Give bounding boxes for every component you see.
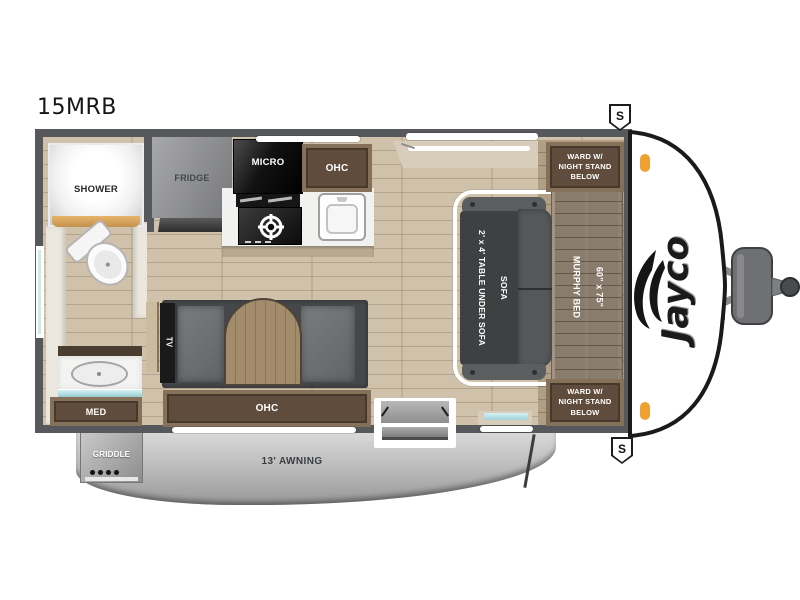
kitchen-ohc-label: OHC — [326, 163, 349, 174]
microwave-label: MICRO — [233, 157, 303, 168]
griddle-knob — [90, 470, 95, 475]
awning-arm — [523, 434, 535, 488]
bath-window-glass — [38, 250, 41, 334]
floorplan: 15MRB 13' AWNING GRIDDLE SHOWER MED — [0, 0, 800, 600]
window — [406, 133, 538, 140]
dinette-cushion — [178, 306, 224, 382]
med-cabinet: MED — [50, 397, 142, 426]
stove-knob — [245, 241, 251, 243]
living-ohc: OHC — [163, 390, 371, 427]
griddle-knob — [114, 470, 119, 475]
sofa-back — [518, 209, 552, 367]
kitchen-sink — [318, 193, 366, 241]
tv-label: TV — [165, 337, 174, 348]
entry-platform — [381, 401, 449, 423]
marker-light — [640, 402, 650, 420]
hitch-ball — [781, 278, 799, 296]
griddle-shelf — [85, 477, 138, 481]
stove — [238, 207, 302, 245]
model-name: 15MRB — [37, 95, 117, 120]
kitchen-ohc: OHC — [302, 144, 372, 192]
entry-steps — [382, 427, 448, 440]
speaker-badge-letter: S — [611, 106, 629, 129]
dinette-cushion — [301, 306, 355, 382]
awning — [76, 433, 556, 505]
griddle: GRIDDLE — [80, 432, 143, 483]
stove-knob — [255, 241, 261, 243]
wardrobe-bottom: WARD W/ NIGHT STAND BELOW — [546, 379, 624, 426]
griddle-label: GRIDDLE — [81, 450, 142, 459]
window-box-step — [478, 411, 532, 425]
sofa-armrest — [462, 364, 546, 380]
jayco-logo: Jayco — [656, 236, 697, 342]
bath-sink-counter — [58, 356, 142, 390]
shower-label: SHOWER — [48, 184, 144, 195]
griddle-knob — [106, 470, 111, 475]
sofa-table-note: 2' x 4' TABLE UNDER SOFA — [477, 230, 487, 346]
side-ledge — [146, 302, 159, 372]
kitchen-cabinet-base — [222, 246, 374, 257]
fridge-label: FRIDGE — [152, 173, 232, 183]
bath-counter-edge — [58, 389, 142, 397]
window — [172, 427, 356, 433]
med-label: MED — [86, 407, 107, 417]
speaker-badge-letter: S — [613, 439, 631, 462]
front-counter — [393, 141, 545, 168]
fridge-vent — [158, 218, 226, 232]
marker-light — [640, 154, 650, 172]
range-hood — [236, 194, 300, 207]
stove-knob — [265, 241, 271, 243]
faucet — [337, 197, 347, 202]
murphy-bed-label: 60" x 75" MURPHY BED — [566, 256, 611, 318]
speaker-badge: S — [611, 437, 633, 464]
sofa-label: SOFA — [499, 276, 509, 300]
table — [224, 298, 302, 386]
wardrobe-bottom-label: WARD W/ NIGHT STAND BELOW — [559, 387, 612, 417]
living-ohc-label: OHC — [256, 403, 279, 414]
wardrobe-top-label: WARD W/ NIGHT STAND BELOW — [559, 152, 612, 182]
window — [256, 136, 360, 142]
wardrobe-top: WARD W/ NIGHT STAND BELOW — [546, 142, 624, 192]
sofa-seat — [460, 211, 524, 365]
window — [480, 426, 533, 432]
entry-door — [374, 398, 456, 448]
griddle-knob — [98, 470, 103, 475]
burner-icon — [257, 213, 285, 241]
